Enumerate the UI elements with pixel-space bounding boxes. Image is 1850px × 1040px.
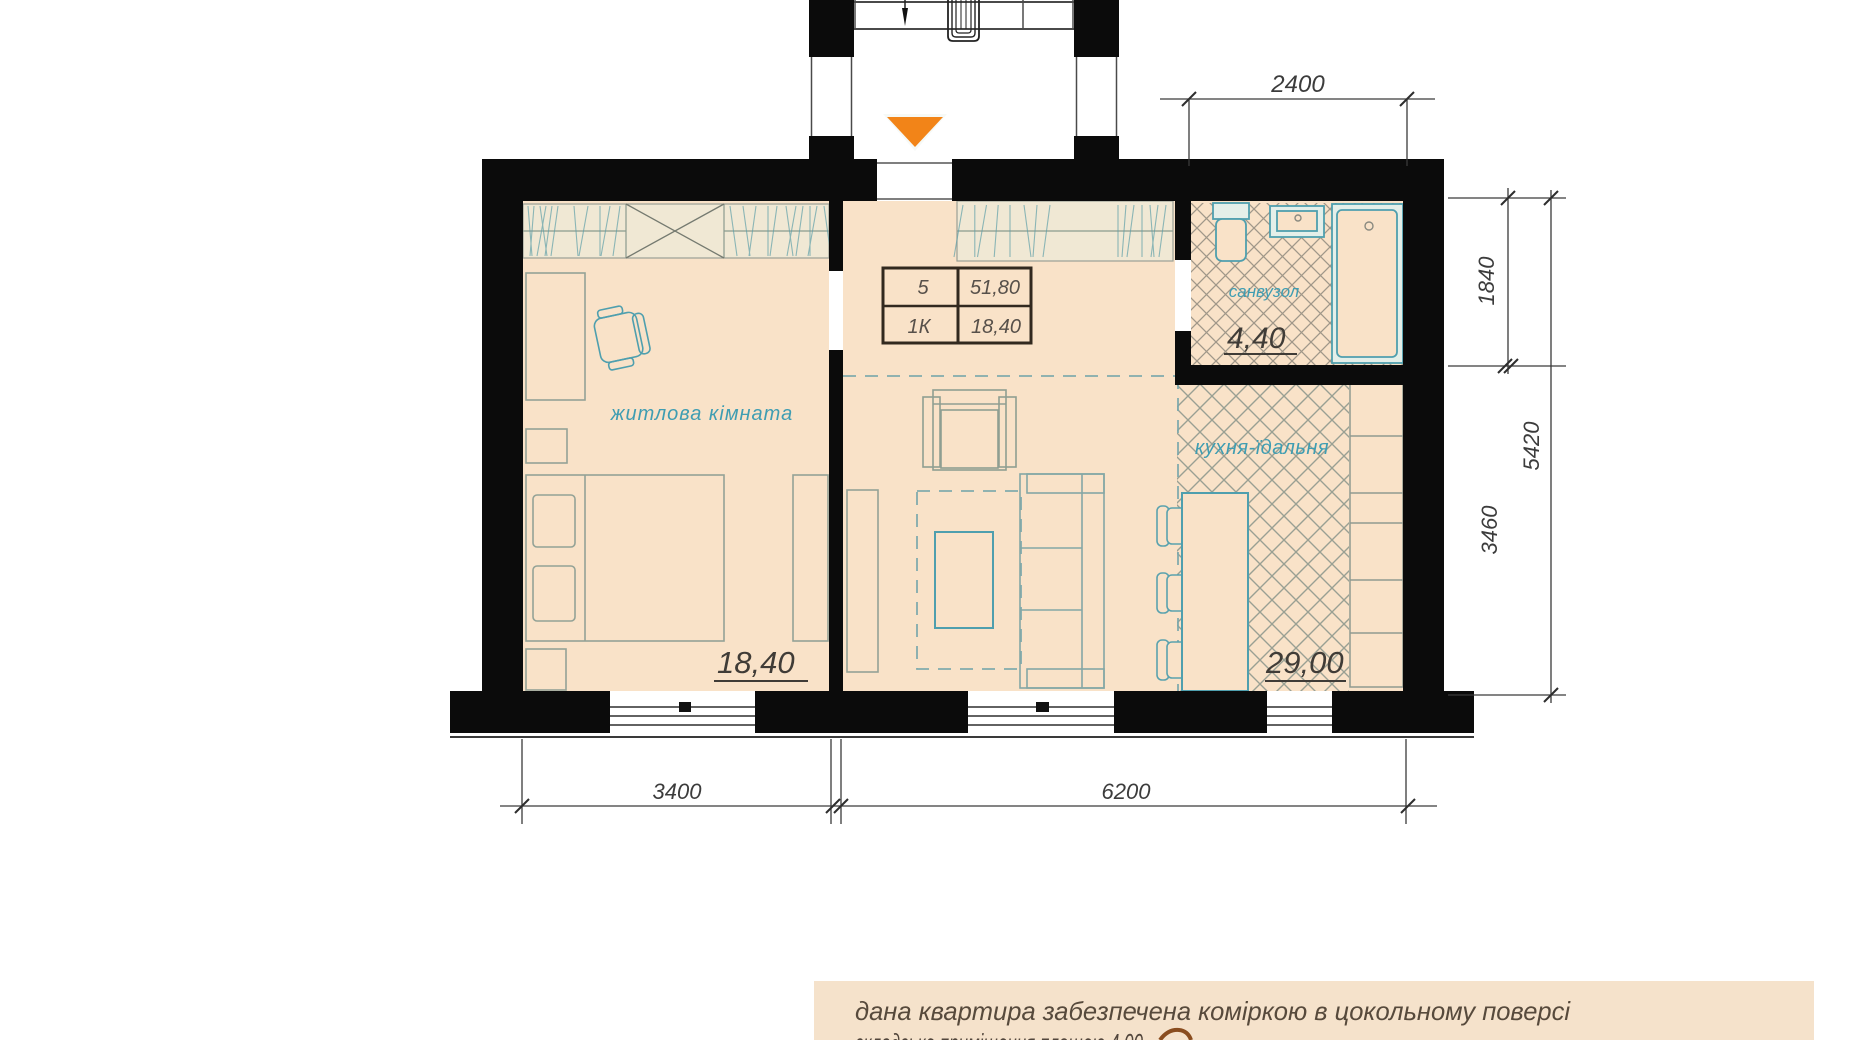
svg-text:складське приміщення площею 4,: складське приміщення площею 4,00 bbox=[855, 1028, 1143, 1040]
svg-text:29,00: 29,00 bbox=[1265, 645, 1344, 680]
svg-text:житлова кімната: житлова кімната bbox=[610, 403, 793, 425]
svg-text:дана квартира забезпечена комі: дана квартира забезпечена коміркою в цок… bbox=[855, 996, 1571, 1026]
svg-text:5: 5 bbox=[917, 277, 929, 299]
svg-text:18,40: 18,40 bbox=[717, 645, 795, 680]
svg-text:3400: 3400 bbox=[653, 779, 703, 804]
svg-text:санвузол: санвузол bbox=[1229, 282, 1300, 301]
svg-text:5420: 5420 bbox=[1519, 421, 1544, 471]
svg-text:2400: 2400 bbox=[1270, 71, 1325, 98]
svg-text:18,40: 18,40 bbox=[971, 316, 1021, 338]
svg-text:кухня-їдальня: кухня-їдальня bbox=[1195, 437, 1329, 459]
svg-text:6200: 6200 bbox=[1102, 779, 1152, 804]
svg-text:51,80: 51,80 bbox=[970, 277, 1020, 299]
svg-text:3460: 3460 bbox=[1477, 505, 1502, 555]
svg-text:1К: 1К bbox=[908, 316, 932, 338]
svg-text:4,40: 4,40 bbox=[1227, 322, 1286, 355]
svg-text:1840: 1840 bbox=[1474, 256, 1499, 306]
